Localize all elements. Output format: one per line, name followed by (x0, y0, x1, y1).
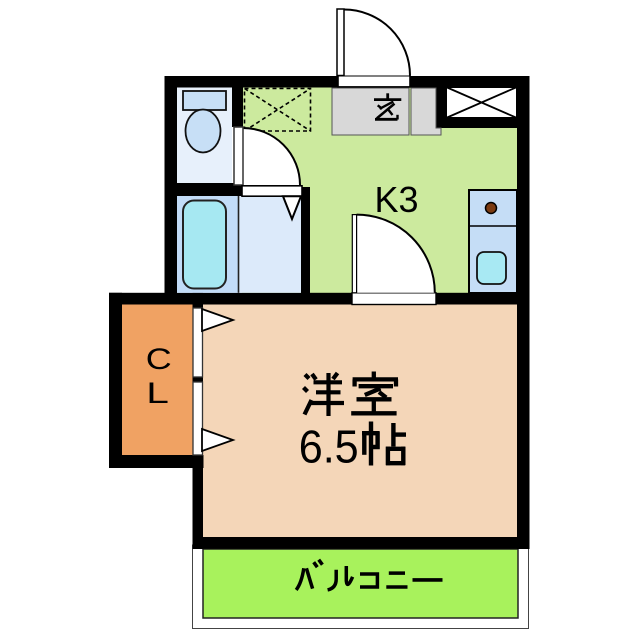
svg-text:L: L (146, 376, 169, 409)
svg-text:K3: K3 (375, 179, 419, 220)
svg-text:C: C (146, 342, 172, 375)
svg-text:6.5: 6.5 (299, 420, 359, 472)
